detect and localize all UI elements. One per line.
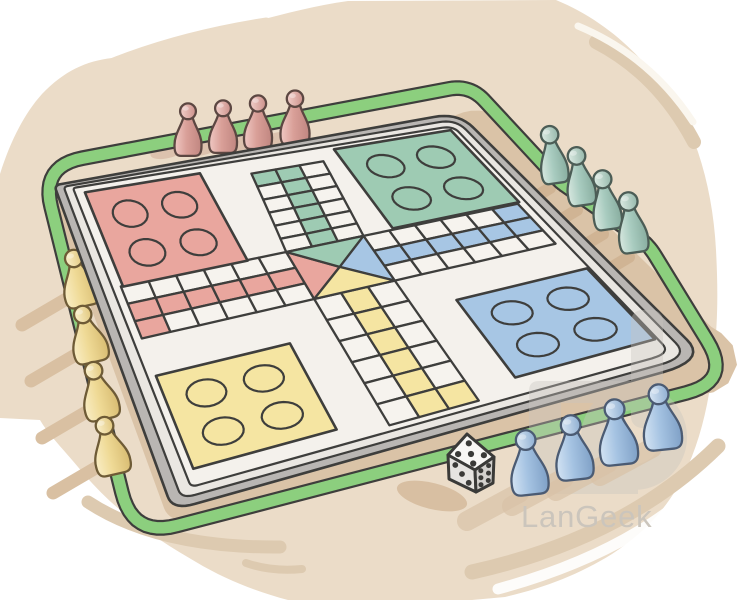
svg-text:LanGeek: LanGeek <box>521 499 652 534</box>
